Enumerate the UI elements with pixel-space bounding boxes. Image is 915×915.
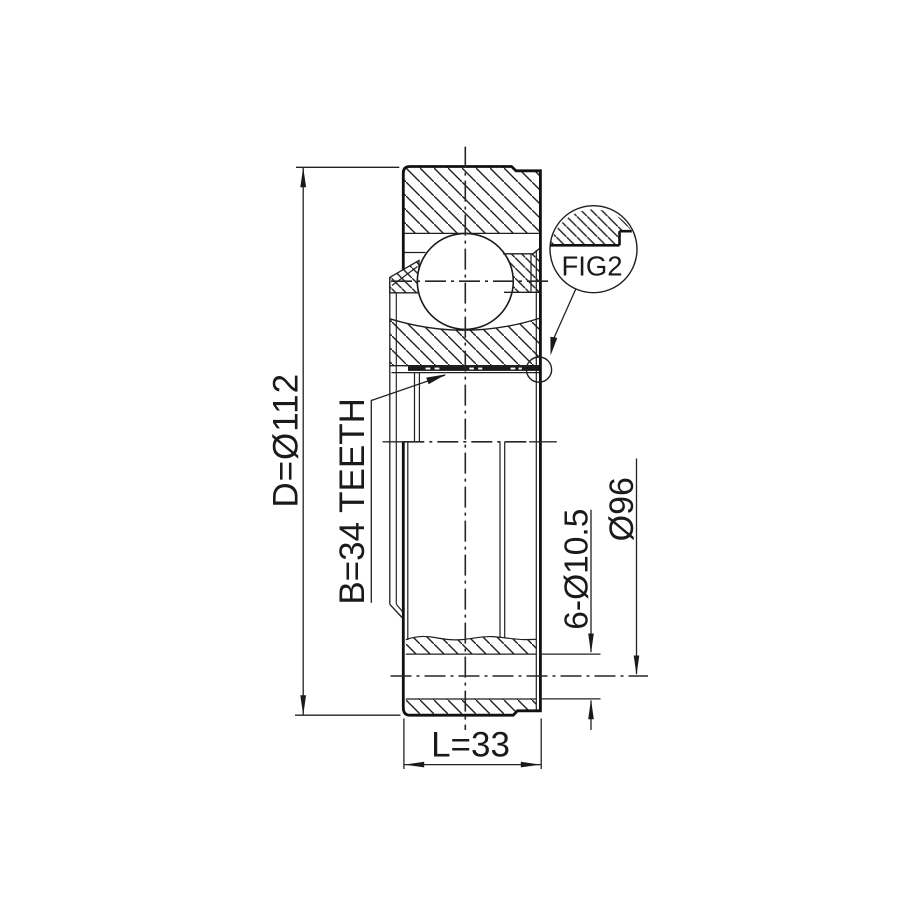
svg-text:Ø96: Ø96 — [603, 477, 641, 541]
svg-text:B=34 TEETH: B=34 TEETH — [333, 398, 372, 605]
svg-text:D=Ø112: D=Ø112 — [266, 373, 305, 508]
svg-text:FIG2: FIG2 — [561, 251, 622, 282]
svg-text:L=33: L=33 — [431, 726, 510, 765]
svg-text:6-Ø10.5: 6-Ø10.5 — [559, 509, 596, 630]
